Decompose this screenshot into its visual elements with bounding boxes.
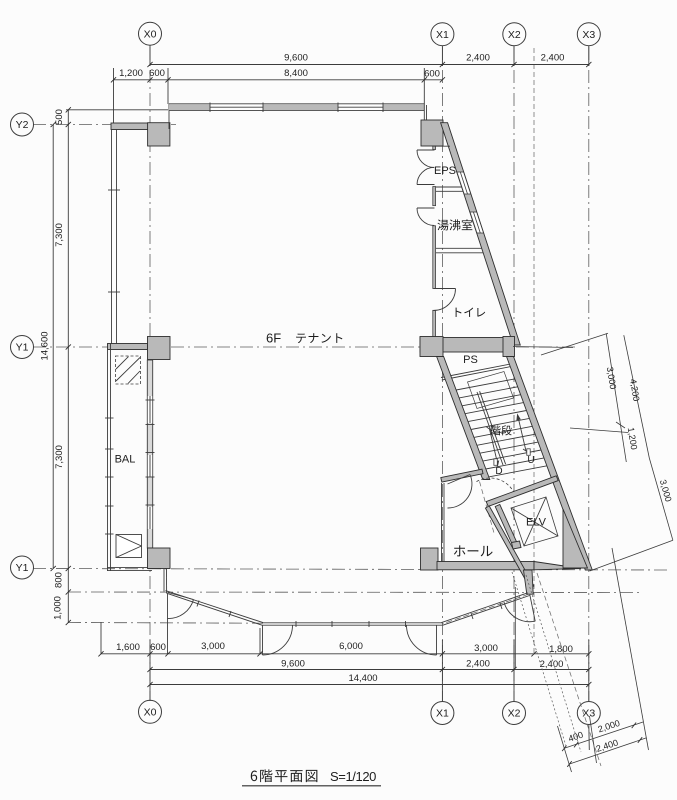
svg-text:Y1: Y1 bbox=[16, 562, 29, 574]
svg-text:1,200: 1,200 bbox=[626, 427, 639, 451]
svg-text:S=1/120: S=1/120 bbox=[330, 769, 376, 784]
svg-text:1,600: 1,600 bbox=[116, 642, 140, 653]
svg-text:3,000: 3,000 bbox=[474, 643, 498, 654]
svg-text:U: U bbox=[527, 455, 534, 466]
svg-text:7,300: 7,300 bbox=[54, 223, 65, 247]
svg-text:2,400: 2,400 bbox=[540, 659, 564, 670]
svg-text:2,400: 2,400 bbox=[466, 659, 490, 670]
svg-text:2,400: 2,400 bbox=[466, 53, 490, 64]
svg-text:14,600: 14,600 bbox=[40, 331, 51, 360]
svg-text:3,000: 3,000 bbox=[658, 478, 674, 502]
svg-text:Y1: Y1 bbox=[16, 342, 29, 354]
svg-text:4,200: 4,200 bbox=[628, 378, 641, 402]
svg-text:800: 800 bbox=[54, 572, 65, 588]
svg-text:6,000: 6,000 bbox=[339, 641, 363, 652]
svg-text:1,200: 1,200 bbox=[119, 68, 143, 79]
svg-text:2,400: 2,400 bbox=[541, 53, 565, 64]
svg-text:3,000: 3,000 bbox=[201, 641, 225, 652]
svg-text:9,600: 9,600 bbox=[284, 53, 308, 64]
svg-text:X1: X1 bbox=[436, 29, 449, 41]
svg-text:1,000: 1,000 bbox=[53, 596, 64, 620]
svg-text:400: 400 bbox=[567, 730, 584, 744]
svg-text:EPS: EPS bbox=[434, 165, 456, 177]
svg-text:BAL: BAL bbox=[115, 454, 136, 466]
svg-text:3,000: 3,000 bbox=[605, 366, 618, 390]
svg-text:D: D bbox=[495, 466, 502, 477]
svg-text:X1: X1 bbox=[436, 708, 449, 720]
svg-text:X0: X0 bbox=[144, 706, 157, 718]
svg-text:Y2: Y2 bbox=[16, 119, 29, 131]
svg-text:6F: 6F bbox=[266, 331, 281, 346]
svg-text:7,300: 7,300 bbox=[54, 445, 65, 469]
svg-text:8,400: 8,400 bbox=[284, 68, 308, 79]
svg-text:2,000: 2,000 bbox=[597, 718, 622, 734]
svg-text:X3: X3 bbox=[582, 29, 595, 41]
svg-text:X2: X2 bbox=[508, 29, 521, 41]
svg-text:X2: X2 bbox=[508, 708, 521, 720]
svg-text:14,400: 14,400 bbox=[348, 673, 377, 684]
svg-text:X3: X3 bbox=[582, 708, 595, 720]
svg-text:X0: X0 bbox=[144, 28, 157, 40]
svg-text:600: 600 bbox=[149, 68, 165, 79]
svg-text:ELV: ELV bbox=[526, 517, 547, 529]
svg-text:PS: PS bbox=[463, 354, 478, 366]
svg-text:9,600: 9,600 bbox=[281, 659, 305, 670]
